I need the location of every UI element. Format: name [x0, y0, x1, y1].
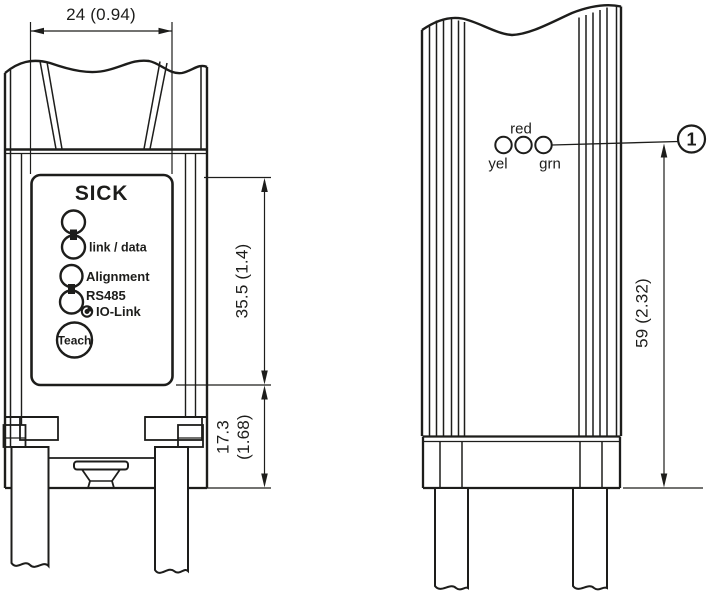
mounting-clip	[74, 462, 128, 489]
front-view: SICK link / data Alignment RS485 IO-Link…	[4, 61, 208, 573]
front-top-wavy-edge	[5, 61, 207, 74]
led-green-label: grn	[539, 156, 561, 173]
io-link-logo-icon	[81, 305, 93, 317]
side-height-dimension-text: 59 (2.32)	[633, 278, 652, 348]
arrowhead-side-top-icon	[661, 144, 668, 158]
arrowhead-upper-bottom-icon	[261, 371, 268, 385]
front-left-step	[4, 425, 26, 447]
side-ribs-right	[579, 6, 617, 436]
led-yellow-icon	[495, 137, 511, 153]
lower-height-dimension-mm-text: 17.3	[214, 420, 233, 454]
led-green-icon	[535, 137, 551, 153]
front-right-step	[178, 425, 203, 447]
side-view: red yel grn	[422, 5, 621, 589]
side-ribs-left	[430, 19, 465, 436]
dimensional-drawing: SICK link / data Alignment RS485 IO-Link…	[0, 0, 707, 600]
sick-logo: SICK	[75, 182, 128, 205]
led-connector-bar-2-icon	[68, 284, 75, 294]
arrowhead-lower-bottom-icon	[261, 474, 268, 488]
callout-number-text: 1	[686, 130, 696, 150]
io-link-label: IO-Link	[96, 304, 142, 319]
side-dimensions: 1 59 (2.32)	[552, 126, 705, 489]
lower-height-dimension-inch-text: (1.68)	[234, 414, 253, 460]
side-cable-right	[573, 488, 607, 589]
led-rs485-label: RS485	[86, 288, 126, 303]
teach-button-label: Teach	[58, 334, 92, 348]
front-groove-left-2	[47, 62, 62, 149]
io-link-group: IO-Link	[81, 304, 142, 319]
arrowhead-left-icon	[31, 28, 44, 34]
upper-height-dimension-text: 35.5 (1.4)	[233, 244, 252, 319]
side-led-row: red yel grn	[488, 121, 560, 173]
front-cable-right	[155, 447, 188, 573]
front-groove-left-1	[40, 61, 56, 149]
led-yellow-label: yel	[488, 156, 507, 173]
arrowhead-side-bottom-icon	[661, 474, 668, 488]
arrowhead-upper-top-icon	[261, 178, 268, 192]
led-alignment-label: Alignment	[86, 269, 150, 284]
side-cable-left	[435, 488, 468, 589]
arrowhead-lower-top-icon	[261, 386, 268, 400]
led-link-data-label: link / data	[89, 241, 148, 255]
led-red-icon	[515, 137, 531, 153]
front-right-flange-window	[145, 417, 202, 440]
callout-leader-line	[552, 142, 678, 146]
width-dimension-text: 24 (0.94)	[66, 5, 136, 24]
dimensional-drawing-page: SICK link / data Alignment RS485 IO-Link…	[0, 0, 707, 600]
front-cable-left	[12, 447, 49, 567]
arrowhead-right-icon	[159, 28, 172, 34]
led-red-label: red	[510, 121, 532, 138]
side-collar	[423, 437, 620, 489]
